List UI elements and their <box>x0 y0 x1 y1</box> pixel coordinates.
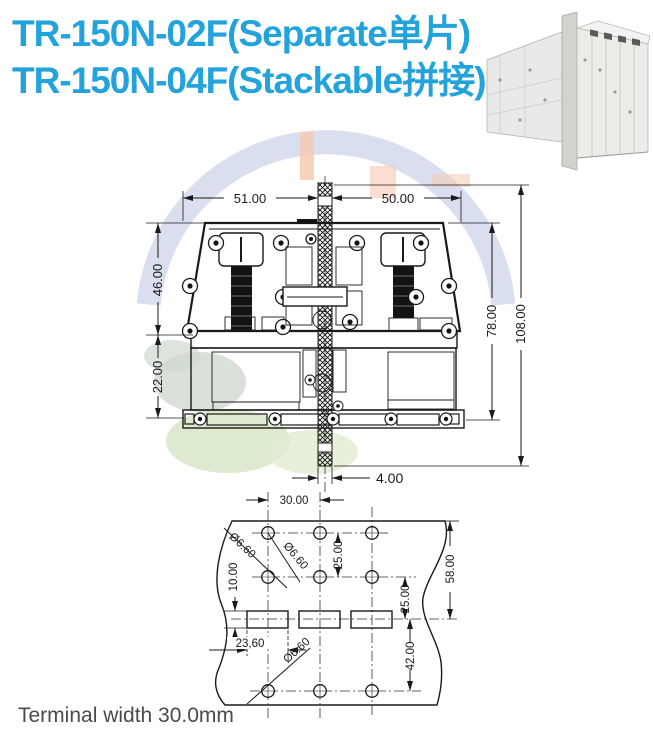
drawing-canvas: 51.00 50.00 46.00 22.00 <box>0 0 653 741</box>
watermark-continent-green-2 <box>266 430 358 474</box>
page-title-line2: TR-150N-04F(Stackable拼接) <box>12 57 486 104</box>
dim-10: 10.00 <box>228 563 240 592</box>
product-photo <box>487 12 650 170</box>
dim-dia-mid: Ø6.60 <box>281 540 310 572</box>
dim-46: 46.00 <box>150 264 165 297</box>
lower-spring-coil <box>388 400 454 409</box>
dim-dia-top: Ø6.60 <box>226 531 257 561</box>
dim-30: 30.00 <box>280 495 309 507</box>
dim-51: 51.00 <box>234 191 267 206</box>
drill-drawing: 30.00 25.00 25.00 42.00 58.00 <box>209 492 459 718</box>
watermark-peach-bar <box>300 132 314 180</box>
dim-22: 22.00 <box>150 361 165 394</box>
dim-50: 50.00 <box>382 191 415 206</box>
terminal-width-caption: Terminal width 30.0mm <box>18 704 234 728</box>
dim-25-center: 25.00 <box>333 541 345 570</box>
right-lower-chamber <box>388 352 454 400</box>
catalog-page: 51.00 50.00 46.00 22.00 <box>0 0 653 741</box>
dim-2360: 23,60 <box>236 638 265 650</box>
dim-58: 58.00 <box>445 555 457 584</box>
photo-left-block <box>487 32 562 142</box>
dim-42: 42.00 <box>405 642 417 671</box>
page-title-line1: TR-150N-02F(Separate单片) <box>12 10 486 57</box>
dim-4: 4.00 <box>376 470 403 486</box>
drill-dimensions: 30.00 25.00 25.00 42.00 58.00 <box>209 495 459 704</box>
drill-centerlines <box>231 492 459 718</box>
dim-108: 108.00 <box>513 304 528 344</box>
right-spring-coil <box>389 318 418 331</box>
dim-78: 78.00 <box>484 305 499 338</box>
page-title: TR-150N-02F(Separate单片) TR-150N-04F(Stac… <box>12 10 486 104</box>
drill-slots <box>247 611 392 628</box>
dim-dia-bottom: Ø6.60 <box>281 636 312 666</box>
photo-right-block <box>577 28 648 158</box>
photo-flange-plate <box>562 12 577 170</box>
dim-25-right: 25.00 <box>400 585 412 614</box>
